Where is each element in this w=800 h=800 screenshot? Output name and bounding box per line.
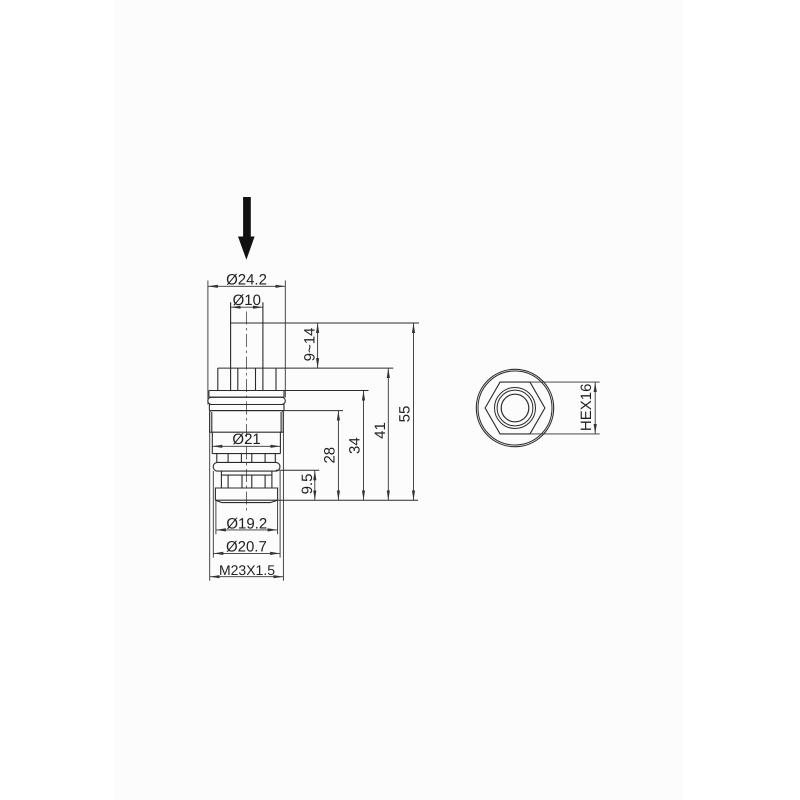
svg-text:9~14: 9~14 bbox=[302, 328, 319, 362]
svg-text:28: 28 bbox=[322, 447, 339, 464]
svg-text:Ø10: Ø10 bbox=[233, 292, 261, 309]
svg-text:M23X1.5: M23X1.5 bbox=[219, 562, 275, 578]
svg-text:Ø20.7: Ø20.7 bbox=[226, 538, 267, 555]
svg-text:55: 55 bbox=[397, 406, 414, 423]
svg-text:HEX16: HEX16 bbox=[578, 384, 595, 432]
svg-text:Ø19.2: Ø19.2 bbox=[226, 515, 267, 532]
svg-text:9.5: 9.5 bbox=[299, 474, 316, 495]
svg-text:34: 34 bbox=[347, 437, 364, 454]
svg-text:Ø21: Ø21 bbox=[232, 431, 260, 448]
svg-text:41: 41 bbox=[372, 422, 389, 439]
svg-text:Ø24.2: Ø24.2 bbox=[226, 271, 267, 288]
